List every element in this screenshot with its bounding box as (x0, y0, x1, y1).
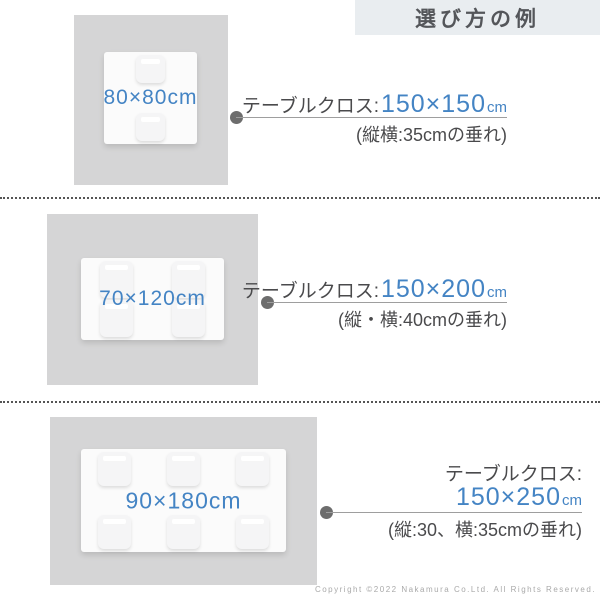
table-size-label-1: 80×80cm (84, 86, 217, 110)
chair-row-top (104, 55, 197, 83)
infographic-page: 選び方の例 80×80cm テーブルクロス:150×150cm (縦横:35cm… (0, 0, 600, 600)
cloth-size-text-1: テーブルクロス:150×150cm (242, 90, 507, 119)
chair-icon (136, 55, 165, 83)
chair-icon (236, 515, 269, 549)
drop-note-1: (縦横:35cmの垂れ) (356, 121, 507, 147)
chair-icon (236, 452, 269, 486)
chair-icon (98, 452, 131, 486)
table-top-2: 70×120cm (81, 258, 224, 340)
cloth-label: テーブルクロス: (242, 96, 379, 117)
table-top-1: 80×80cm (104, 52, 197, 144)
table-top-3: 90×180cm (81, 449, 286, 552)
cloth-size-value: 150×150 (381, 90, 486, 118)
chair-row-bottom (98, 515, 269, 549)
dotted-divider (0, 197, 600, 199)
tablecloth-swatch-2: 70×120cm (47, 214, 258, 385)
cloth-size-unit: cm (487, 99, 507, 116)
chair-row-bottom (104, 113, 197, 141)
page-title: 選び方の例 (415, 3, 540, 33)
tablecloth-swatch-3: 90×180cm (50, 417, 317, 585)
page-title-banner: 選び方の例 (355, 0, 600, 35)
chair-icon (167, 515, 200, 549)
dotted-divider (0, 401, 600, 403)
table-size-label-2: 70×120cm (61, 287, 244, 311)
cloth-size-value: 150×200 (381, 275, 486, 303)
cloth-size-value-line-3: 150×250cm (454, 483, 582, 512)
cloth-label: テーブルクロス: (242, 281, 379, 302)
tablecloth-swatch-1: 80×80cm (74, 15, 228, 185)
cloth-size-text-3: テーブルクロス: (445, 459, 582, 486)
cloth-label: テーブルクロス: (445, 464, 582, 485)
copyright-text: Copyright ©2022 Nakamura Co.Ltd. All Rig… (315, 585, 596, 594)
drop-note-3: (縦:30、横:35cmの垂れ) (388, 516, 582, 542)
cloth-size-unit: cm (487, 284, 507, 301)
chair-row-top (98, 452, 269, 486)
table-size-label-3: 90×180cm (61, 487, 306, 514)
chair-icon (167, 452, 200, 486)
cloth-size-text-2: テーブルクロス:150×200cm (242, 275, 507, 304)
chair-icon (136, 113, 165, 141)
connector-line (326, 512, 582, 513)
chair-icon (98, 515, 131, 549)
cloth-size-unit: cm (562, 492, 582, 509)
cloth-size-value: 150×250 (456, 483, 561, 511)
drop-note-2: (縦・横:40cmの垂れ) (338, 306, 507, 332)
